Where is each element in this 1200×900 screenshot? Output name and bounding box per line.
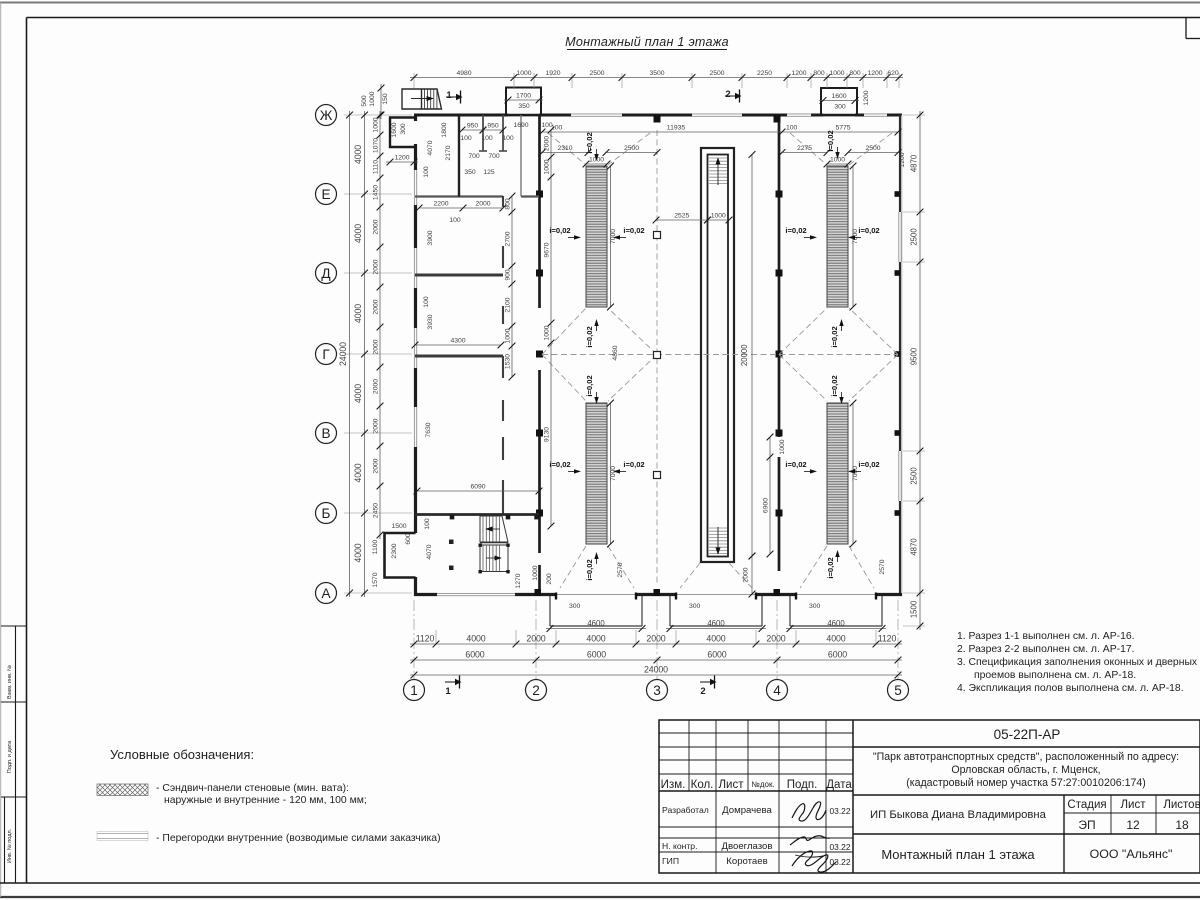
svg-text:350: 350 xyxy=(464,169,476,176)
svg-text:Подп.: Подп. xyxy=(787,779,818,791)
svg-text:1700: 1700 xyxy=(516,92,531,99)
svg-text:5775: 5775 xyxy=(835,124,850,131)
svg-text:наружные и внутренние - 120 мм: наружные и внутренние - 120 мм, 100 мм; xyxy=(164,795,367,806)
svg-text:Стадия: Стадия xyxy=(1067,799,1106,811)
svg-text:4000: 4000 xyxy=(353,463,363,482)
svg-text:2170: 2170 xyxy=(445,145,452,160)
svg-text:ЭП: ЭП xyxy=(1078,818,1095,832)
svg-text:2500: 2500 xyxy=(865,145,880,152)
svg-text:2: 2 xyxy=(725,89,730,100)
svg-text:2275: 2275 xyxy=(797,145,812,152)
svg-text:№док.: №док. xyxy=(751,780,774,789)
svg-text:9130: 9130 xyxy=(543,427,550,442)
svg-text:20000: 20000 xyxy=(740,344,749,366)
svg-text:100: 100 xyxy=(460,135,472,142)
svg-text:2000: 2000 xyxy=(372,259,379,274)
svg-text:4000: 4000 xyxy=(826,633,845,643)
svg-text:2500: 2500 xyxy=(910,228,919,246)
svg-text:Ж: Ж xyxy=(320,108,333,123)
svg-text:i=0,02: i=0,02 xyxy=(826,557,835,578)
svg-text:2570: 2570 xyxy=(617,562,624,577)
svg-text:В: В xyxy=(321,426,330,441)
svg-text:Н. контр.: Н. контр. xyxy=(662,841,697,851)
svg-text:i=0,02: i=0,02 xyxy=(785,226,806,235)
svg-text:300: 300 xyxy=(689,603,701,610)
svg-text:1000: 1000 xyxy=(372,117,379,132)
svg-text:1000: 1000 xyxy=(829,70,844,77)
svg-text:03.22: 03.22 xyxy=(830,842,851,852)
svg-text:Домрачева: Домрачева xyxy=(722,805,772,816)
svg-text:800: 800 xyxy=(849,70,861,77)
svg-text:i=0,02: i=0,02 xyxy=(858,226,879,235)
svg-text:4980: 4980 xyxy=(456,70,471,77)
svg-text:2000: 2000 xyxy=(766,633,785,643)
svg-text:620: 620 xyxy=(887,70,899,77)
svg-text:4070: 4070 xyxy=(427,140,434,155)
svg-text:5: 5 xyxy=(894,683,902,698)
svg-text:Е: Е xyxy=(321,187,330,202)
svg-text:4860: 4860 xyxy=(612,345,619,360)
svg-text:1000: 1000 xyxy=(504,328,511,343)
svg-text:2500: 2500 xyxy=(910,467,919,485)
svg-text:2200: 2200 xyxy=(433,200,448,207)
svg-text:Б: Б xyxy=(322,506,331,521)
svg-text:600: 600 xyxy=(405,533,412,545)
svg-text:1500: 1500 xyxy=(391,523,406,530)
svg-text:А: А xyxy=(321,586,331,601)
svg-text:1450: 1450 xyxy=(372,185,379,200)
svg-text:i=0,02: i=0,02 xyxy=(623,226,644,235)
svg-text:Подп. и дата: Подп. и дата xyxy=(7,740,13,773)
svg-text:4000: 4000 xyxy=(466,633,485,643)
svg-text:2000: 2000 xyxy=(543,136,550,151)
svg-text:2000: 2000 xyxy=(526,633,545,643)
svg-text:1600: 1600 xyxy=(831,93,846,100)
svg-text:24000: 24000 xyxy=(644,664,668,674)
svg-text:18: 18 xyxy=(1175,818,1189,832)
svg-text:2000: 2000 xyxy=(743,567,750,582)
svg-text:2310: 2310 xyxy=(557,145,572,152)
svg-text:2000: 2000 xyxy=(372,458,379,473)
svg-text:1270: 1270 xyxy=(515,573,522,588)
svg-text:100: 100 xyxy=(786,124,798,131)
svg-text:11935: 11935 xyxy=(667,124,686,131)
svg-text:800: 800 xyxy=(504,198,511,210)
svg-text:i=0,02: i=0,02 xyxy=(830,326,839,347)
svg-text:2. Разрез 2-2 выполнен см. л.: 2. Разрез 2-2 выполнен см. л. АР-17. xyxy=(957,644,1135,655)
svg-text:2570: 2570 xyxy=(879,559,886,574)
svg-text:Д: Д xyxy=(321,266,330,281)
svg-text:6000: 6000 xyxy=(828,649,847,659)
svg-text:4000: 4000 xyxy=(586,633,605,643)
svg-text:2000: 2000 xyxy=(372,299,379,314)
svg-text:Инв. № подл.: Инв. № подл. xyxy=(7,828,13,863)
svg-text:1800: 1800 xyxy=(441,122,448,137)
svg-text:(кадастровый номер участка 57:: (кадастровый номер участка 57:27:0010206… xyxy=(906,777,1146,789)
svg-text:1200: 1200 xyxy=(899,152,906,167)
svg-text:1000: 1000 xyxy=(543,159,550,174)
svg-text:125: 125 xyxy=(483,169,495,176)
svg-text:Условные обозначения:: Условные обозначения: xyxy=(110,747,254,762)
svg-text:Двоеглазов: Двоеглазов xyxy=(722,841,773,852)
svg-text:500: 500 xyxy=(361,95,368,107)
svg-text:Изм.: Изм. xyxy=(661,779,686,791)
svg-text:2000: 2000 xyxy=(372,379,379,394)
svg-text:950: 950 xyxy=(487,122,499,129)
svg-text:3500: 3500 xyxy=(649,70,664,77)
svg-text:150: 150 xyxy=(382,93,389,105)
svg-text:1500: 1500 xyxy=(910,600,919,618)
svg-text:2500: 2500 xyxy=(709,70,724,77)
svg-text:Лист: Лист xyxy=(1121,799,1147,811)
svg-text:6000: 6000 xyxy=(587,649,606,659)
svg-text:2250: 2250 xyxy=(757,70,772,77)
svg-text:- Сэндвич-панели стеновые (мин: - Сэндвич-панели стеновые (мин. вата): xyxy=(156,783,349,794)
svg-text:2000: 2000 xyxy=(372,418,379,433)
svg-text:4000: 4000 xyxy=(353,543,363,562)
svg-text:100: 100 xyxy=(449,217,461,224)
svg-text:3900: 3900 xyxy=(427,230,434,245)
svg-text:i=0,02: i=0,02 xyxy=(549,460,570,469)
svg-text:12: 12 xyxy=(1126,818,1140,832)
svg-text:Монтажный план 1 этажа: Монтажный план 1 этажа xyxy=(881,847,1035,862)
svg-text:100: 100 xyxy=(541,122,553,129)
svg-text:100: 100 xyxy=(502,135,514,142)
svg-text:i=0,02: i=0,02 xyxy=(830,375,839,396)
svg-text:9670: 9670 xyxy=(543,242,550,257)
svg-text:1000: 1000 xyxy=(711,212,726,219)
svg-text:100: 100 xyxy=(424,518,431,530)
svg-text:Разработал: Разработал xyxy=(662,805,709,815)
svg-text:i=0,02: i=0,02 xyxy=(785,460,806,469)
svg-text:1530: 1530 xyxy=(504,354,511,369)
svg-text:9500: 9500 xyxy=(910,347,919,365)
svg-text:1. Разрез 1-1 выполнен см. л.: 1. Разрез 1-1 выполнен см. л. АР-16. xyxy=(957,631,1135,642)
svg-text:2: 2 xyxy=(532,683,540,698)
svg-text:100: 100 xyxy=(481,135,493,142)
svg-text:300: 300 xyxy=(400,123,407,135)
svg-text:2500: 2500 xyxy=(589,70,604,77)
svg-text:i=0,02: i=0,02 xyxy=(623,460,644,469)
svg-text:4300: 4300 xyxy=(450,337,465,344)
svg-text:4. Экспликация полов выполнена: 4. Экспликация полов выполнена см. л. АР… xyxy=(957,683,1184,694)
svg-text:200: 200 xyxy=(546,573,553,585)
svg-text:i=0,02: i=0,02 xyxy=(585,375,594,396)
svg-text:4070: 4070 xyxy=(426,544,433,559)
svg-text:2000: 2000 xyxy=(372,219,379,234)
svg-text:350: 350 xyxy=(518,103,530,110)
svg-text:6900: 6900 xyxy=(762,498,769,513)
svg-text:900: 900 xyxy=(504,269,511,281)
svg-text:6090: 6090 xyxy=(470,483,485,490)
svg-text:1: 1 xyxy=(445,686,451,697)
svg-text:6000: 6000 xyxy=(707,649,726,659)
svg-text:i=0,02: i=0,02 xyxy=(549,226,570,235)
svg-text:03.22: 03.22 xyxy=(830,806,851,816)
svg-text:4600: 4600 xyxy=(827,619,845,628)
svg-text:700: 700 xyxy=(468,153,480,160)
svg-text:ООО "Альянс": ООО "Альянс" xyxy=(1090,847,1173,861)
svg-text:1920: 1920 xyxy=(545,70,560,77)
svg-text:i=0,02: i=0,02 xyxy=(858,460,879,469)
svg-text:3. Спецификация заполнения око: 3. Спецификация заполнения оконных и две… xyxy=(957,656,1198,668)
svg-text:24000: 24000 xyxy=(338,342,348,366)
svg-text:1: 1 xyxy=(446,90,452,101)
svg-text:i=0,02: i=0,02 xyxy=(585,559,594,580)
svg-text:1120: 1120 xyxy=(878,633,897,643)
svg-text:1000: 1000 xyxy=(543,325,550,340)
svg-text:- Перегородки внутренние (возв: - Перегородки внутренние (возводимые сил… xyxy=(156,833,441,844)
svg-text:1110: 1110 xyxy=(372,160,379,174)
svg-text:1000: 1000 xyxy=(516,70,531,77)
svg-text:1600: 1600 xyxy=(391,122,398,137)
svg-text:950: 950 xyxy=(467,122,479,129)
svg-text:4000: 4000 xyxy=(353,145,363,164)
svg-text:2: 2 xyxy=(700,686,705,697)
svg-text:800: 800 xyxy=(813,70,825,77)
svg-text:Монтажный план 1 этажа: Монтажный план 1 этажа xyxy=(565,35,729,49)
svg-text:4000: 4000 xyxy=(353,304,363,323)
svg-text:1000: 1000 xyxy=(369,91,376,106)
svg-text:2700: 2700 xyxy=(504,231,511,246)
svg-text:i=0,02: i=0,02 xyxy=(826,130,835,151)
svg-text:i=0,02: i=0,02 xyxy=(585,132,594,153)
svg-text:Дата: Дата xyxy=(826,779,852,791)
svg-text:1200: 1200 xyxy=(791,70,806,77)
svg-text:7000: 7000 xyxy=(610,466,617,481)
svg-text:Кол.: Кол. xyxy=(691,779,714,791)
svg-text:100: 100 xyxy=(423,166,430,178)
svg-text:Листов: Листов xyxy=(1163,799,1200,811)
svg-text:2000: 2000 xyxy=(475,200,490,207)
svg-text:4000: 4000 xyxy=(353,224,363,243)
svg-text:2000: 2000 xyxy=(372,339,379,354)
svg-text:100: 100 xyxy=(423,296,430,308)
svg-text:4870: 4870 xyxy=(910,538,919,556)
svg-text:4600: 4600 xyxy=(707,619,725,628)
svg-text:1000: 1000 xyxy=(779,439,786,454)
svg-text:1690: 1690 xyxy=(513,122,528,129)
svg-text:3: 3 xyxy=(653,683,661,698)
svg-text:300: 300 xyxy=(569,603,581,610)
svg-text:1070: 1070 xyxy=(372,138,379,153)
svg-text:Г: Г xyxy=(322,347,330,362)
svg-text:300: 300 xyxy=(834,104,846,111)
svg-text:3930: 3930 xyxy=(427,314,434,329)
svg-text:1200: 1200 xyxy=(867,70,882,77)
svg-text:7630: 7630 xyxy=(425,422,432,437)
svg-text:4870: 4870 xyxy=(910,154,919,172)
svg-text:проемов выполнена см. л. АР-18: проемов выполнена см. л. АР-18. xyxy=(974,670,1136,681)
svg-text:7000: 7000 xyxy=(610,229,617,244)
svg-text:Взам. инв. №: Взам. инв. № xyxy=(7,665,13,699)
svg-text:4600: 4600 xyxy=(587,619,605,628)
svg-text:1120: 1120 xyxy=(416,633,435,643)
svg-text:1200: 1200 xyxy=(863,90,870,105)
svg-text:700: 700 xyxy=(488,153,500,160)
svg-text:i=0,02: i=0,02 xyxy=(585,326,594,347)
svg-text:Орловская область, г. Мценск,: Орловская область, г. Мценск, xyxy=(951,764,1100,776)
svg-text:4000: 4000 xyxy=(706,633,725,643)
svg-text:2300: 2300 xyxy=(391,543,398,558)
svg-text:2525: 2525 xyxy=(674,212,689,219)
svg-text:1100: 1100 xyxy=(372,539,379,554)
svg-text:6000: 6000 xyxy=(465,649,484,659)
svg-text:4000: 4000 xyxy=(353,384,363,403)
svg-text:Лист: Лист xyxy=(719,779,745,791)
svg-text:05-22П-АР: 05-22П-АР xyxy=(994,727,1061,742)
svg-text:"Парк автотранспортных средств: "Парк автотранспортных средств", располо… xyxy=(873,751,1179,763)
svg-text:ИП Быкова Диана Владимировна: ИП Быкова Диана Владимировна xyxy=(870,809,1047,821)
svg-text:1000: 1000 xyxy=(532,565,539,580)
svg-text:2500: 2500 xyxy=(624,145,639,152)
svg-text:2100: 2100 xyxy=(504,297,511,312)
svg-text:Коротаев: Коротаев xyxy=(726,856,767,867)
svg-text:2000: 2000 xyxy=(646,633,665,643)
svg-text:1570: 1570 xyxy=(372,572,379,587)
svg-text:ГИП: ГИП xyxy=(662,856,679,866)
svg-text:300: 300 xyxy=(809,603,821,610)
svg-text:4: 4 xyxy=(773,683,781,698)
svg-text:2450: 2450 xyxy=(372,503,379,518)
svg-text:1200: 1200 xyxy=(394,154,409,161)
svg-text:1: 1 xyxy=(410,683,418,698)
